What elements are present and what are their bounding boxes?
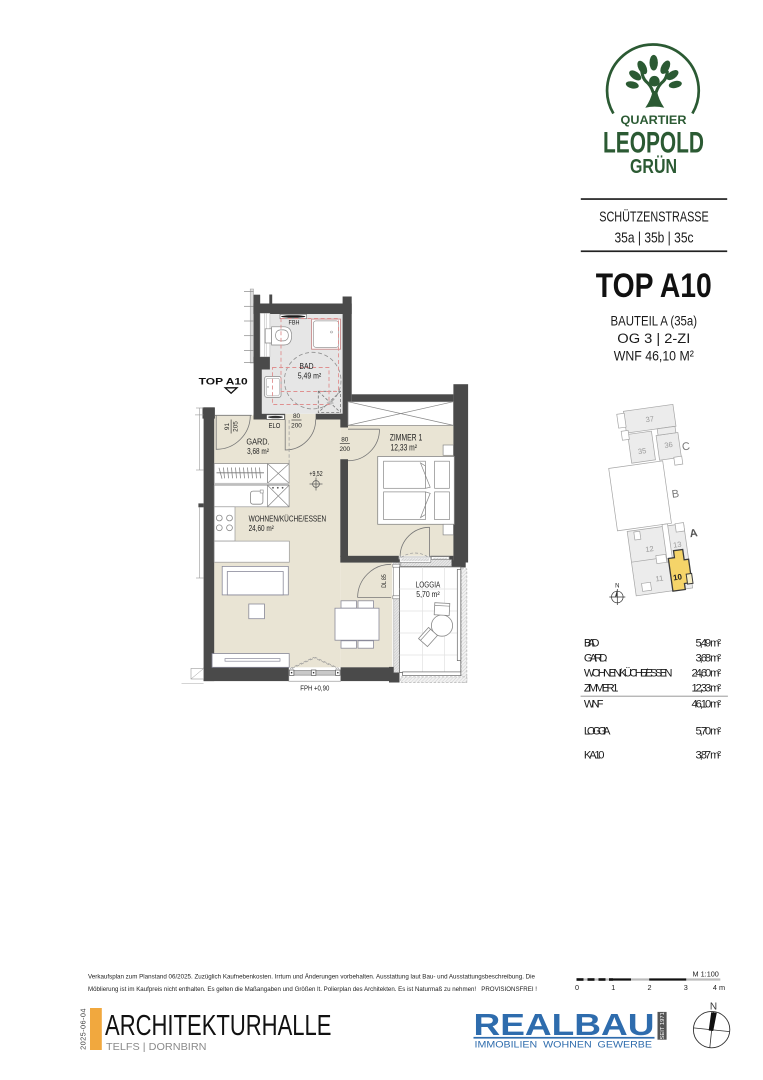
svg-text:BAUTEIL A (35a): BAUTEIL A (35a) [611, 314, 698, 330]
svg-text:QUARTIER: QUARTIER [621, 115, 688, 127]
svg-text:WOHNEN/KÜCHE/ESSEN: WOHNEN/KÜCHE/ESSEN [584, 668, 674, 680]
svg-text:IMMOBILIEN WOHNEN GEWERBE: IMMOBILIEN WOHNEN GEWERBE [475, 1039, 653, 1049]
svg-text:24,60 m²: 24,60 m² [249, 524, 274, 533]
svg-text:B: B [671, 488, 680, 501]
svg-text:46,10 m²: 46,10 m² [692, 699, 723, 711]
svg-text:WNF: WNF [584, 699, 605, 711]
svg-text:TELFS | DORNBIRN: TELFS | DORNBIRN [106, 1041, 207, 1053]
svg-text:3,87 m²: 3,87 m² [696, 749, 723, 761]
svg-text:LOGGIA: LOGGIA [584, 725, 612, 737]
svg-text:3,68 m²: 3,68 m² [247, 447, 269, 456]
svg-text:GARD.: GARD. [246, 438, 269, 447]
svg-text:11: 11 [655, 573, 664, 583]
svg-text:FBH: FBH [289, 320, 300, 327]
svg-text:35: 35 [637, 446, 647, 456]
svg-text:12: 12 [645, 544, 655, 554]
svg-text:TOP A10: TOP A10 [199, 376, 248, 386]
svg-text:OG 3 | 2-ZI: OG 3 | 2-ZI [617, 331, 690, 347]
svg-text:BAD: BAD [300, 362, 314, 371]
svg-text:WNF 46,10 M²: WNF 46,10 M² [614, 349, 694, 365]
svg-text:Möblierung ist im Kaufpreis ni: Möblierung ist im Kaufpreis nicht enthal… [88, 987, 537, 993]
svg-text:12,33 m²: 12,33 m² [692, 683, 723, 695]
svg-text:N: N [615, 584, 619, 590]
svg-text:80: 80 [341, 437, 349, 444]
svg-text:13: 13 [673, 540, 683, 550]
svg-text:N: N [710, 1002, 717, 1013]
svg-text:A: A [689, 527, 699, 540]
svg-text:37: 37 [645, 414, 655, 424]
svg-text:2: 2 [647, 983, 651, 992]
svg-text:C: C [681, 440, 691, 453]
svg-text:Verkaufsplan zum Planstand 06/: Verkaufsplan zum Planstand 06/2025. Zuzü… [88, 974, 536, 981]
svg-text:GRÜN: GRÜN [630, 155, 677, 178]
svg-text:ELO: ELO [269, 423, 281, 430]
svg-text:205: 205 [233, 421, 240, 432]
svg-text:BAD: BAD [584, 637, 601, 649]
svg-text:5,49 m²: 5,49 m² [696, 637, 723, 649]
svg-text:5,70 m²: 5,70 m² [696, 725, 723, 737]
svg-text:M 1:100: M 1:100 [693, 970, 719, 979]
svg-text:24,60 m²: 24,60 m² [692, 668, 723, 680]
svg-text:200: 200 [291, 423, 302, 430]
svg-text:ARCHITEKTURHALLE: ARCHITEKTURHALLE [105, 1010, 332, 1042]
svg-text:4 m: 4 m [713, 983, 725, 992]
svg-text:5,49 m²: 5,49 m² [298, 372, 322, 381]
svg-text:+9,52: +9,52 [309, 471, 322, 478]
svg-text:10: 10 [673, 572, 684, 582]
svg-text:ZIMMER 1: ZIMMER 1 [390, 433, 423, 443]
svg-text:ZIMMER 1: ZIMMER 1 [584, 683, 620, 695]
svg-text:80: 80 [293, 413, 301, 420]
svg-text:LOGGIA: LOGGIA [416, 581, 441, 590]
svg-text:12,33 m²: 12,33 m² [391, 443, 418, 453]
svg-text:3: 3 [684, 983, 688, 992]
svg-text:200: 200 [339, 446, 350, 453]
svg-text:TOP A10: TOP A10 [596, 267, 712, 305]
svg-text:2025-06-04: 2025-06-04 [79, 1008, 88, 1050]
svg-text:SEIT 1971: SEIT 1971 [660, 1012, 666, 1039]
svg-text:SCHÜTZENSTRASSE: SCHÜTZENSTRASSE [599, 208, 709, 226]
svg-text:3,68 m²: 3,68 m² [696, 653, 723, 665]
svg-text:36: 36 [664, 440, 674, 450]
svg-text:WOHNEN/KÜCHE/ESSEN: WOHNEN/KÜCHE/ESSEN [249, 514, 327, 524]
svg-text:KA10: KA10 [584, 749, 606, 761]
svg-text:GARD.: GARD. [584, 653, 609, 665]
svg-text:DL 85: DL 85 [381, 574, 388, 588]
svg-text:5,70 m²: 5,70 m² [416, 590, 440, 599]
svg-text:FPH +0,90: FPH +0,90 [300, 684, 329, 693]
svg-text:91: 91 [224, 423, 231, 431]
svg-text:0: 0 [575, 983, 579, 992]
svg-text:1: 1 [611, 983, 615, 992]
svg-text:35a | 35b | 35c: 35a | 35b | 35c [615, 231, 694, 247]
